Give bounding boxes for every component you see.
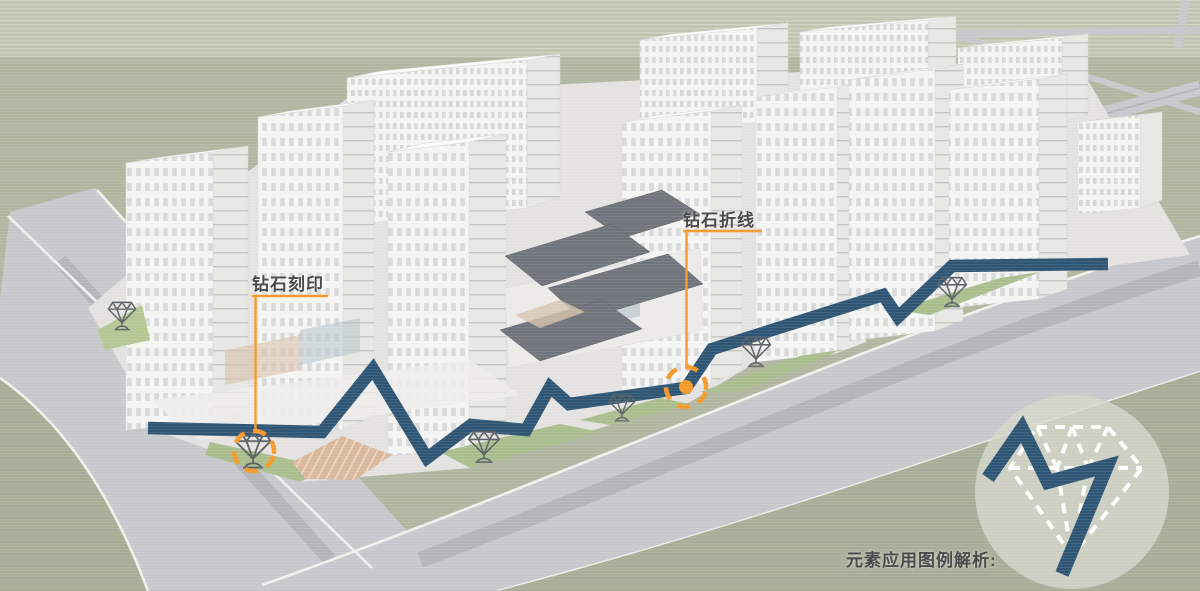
label-diamond-imprint: 钻石刻印	[252, 270, 324, 295]
legend-caption: 元素应用图例解析:	[846, 546, 997, 571]
tower-7	[949, 74, 1067, 308]
distant-road-1	[952, 30, 1200, 34]
callout-dot-polyline	[679, 380, 693, 394]
masterplan-rendering: 钻石刻印 钻石折线 元素应用图例解析:	[0, 0, 1200, 591]
scene-svg	[0, 0, 1200, 591]
low-building-far-right	[1078, 112, 1162, 214]
tower-1	[126, 146, 248, 430]
legend	[975, 395, 1169, 589]
label-diamond-polyline: 钻石折线	[683, 206, 755, 231]
